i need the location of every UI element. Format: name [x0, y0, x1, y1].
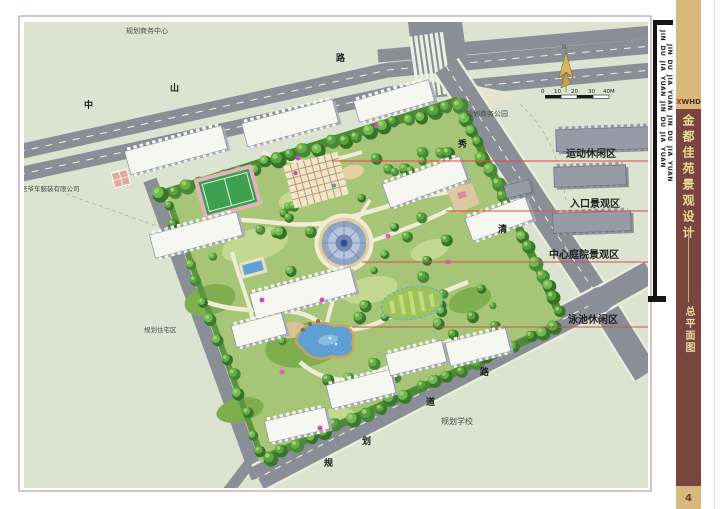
title-divider [688, 228, 689, 302]
scale-tick: 20 [571, 89, 578, 95]
road-char: 路 [480, 366, 490, 378]
road-char: 规 [324, 457, 333, 469]
scale-tick: 40M [603, 89, 615, 95]
label-school: 规划学校 [441, 416, 473, 426]
site-plan: 中 山 路 秀 清 规 划 道 路 N 0 10 20 30 40M [0, 0, 720, 509]
scale-tick: 30 [588, 89, 595, 95]
label-business-center: 规划商务中心 [126, 26, 168, 35]
right-edge-line [714, 0, 715, 509]
sidebar-tan-top [676, 0, 701, 109]
label-residential: 规划住宅区 [144, 325, 177, 334]
road-char: 划 [362, 435, 371, 447]
context-building [553, 209, 634, 236]
bracket-top-stub [653, 20, 673, 25]
sheet-title: 总平面图 [676, 306, 701, 358]
scale-tick: 0 [541, 89, 545, 95]
label-entrance-area: 入口景观区 [570, 198, 620, 210]
bracket-bar [653, 20, 657, 302]
label-sports-area: 运动休闲区 [566, 147, 616, 160]
road-char: 清 [498, 223, 507, 235]
label-company: 老爷车服装有限公司 [21, 184, 80, 193]
sheet-title-text: 总平面图 [681, 306, 696, 354]
context-building [554, 163, 629, 190]
logo-rest: WHD [682, 98, 701, 106]
label-business-park: 规划商务公园 [466, 109, 508, 118]
page-number: 4 [685, 493, 692, 504]
jin-text-column-1: JIN DU JIA YUAN JIN DU JIA YUAN [659, 30, 666, 282]
bracket-bottom-stub [648, 296, 666, 302]
road-char: 山 [170, 82, 179, 94]
label-pool-area: 泳池休闲区 [568, 313, 618, 326]
project-title: 金都佳苑景观设计 [676, 114, 701, 246]
scale-tick: 10 [554, 89, 561, 95]
label-courtyard-area: 中心庭院景观区 [549, 248, 619, 261]
road-char: 中 [84, 99, 93, 111]
jin-text-column-2: JIN DU JIA YUAN JIN DU JIA YUAN [666, 44, 673, 296]
title-sidebar: XWHD 金都佳苑景观设计 总平面图 4 [676, 0, 701, 509]
project-title-text: 金都佳苑景观设计 [680, 114, 697, 242]
page: 中 山 路 秀 清 规 划 道 路 N 0 10 20 30 40M [0, 0, 720, 509]
road-char: 道 [426, 396, 435, 408]
road-char: 路 [336, 52, 346, 64]
central-plaza [320, 219, 368, 267]
sidebar-tan-bottom: 4 [676, 486, 701, 509]
xwhd-logo: XWHD [676, 96, 701, 109]
road-char: 秀 [457, 138, 467, 150]
north-label: N [562, 44, 567, 51]
